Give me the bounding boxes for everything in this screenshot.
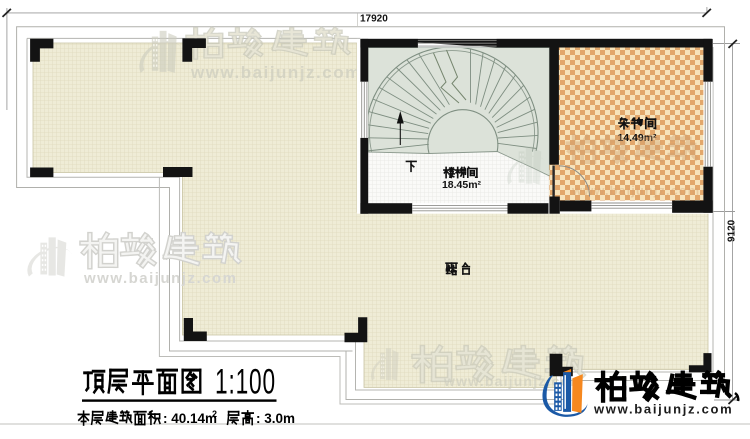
svg-text:17920: 17920 <box>360 14 388 25</box>
svg-text:9120: 9120 <box>727 219 738 242</box>
svg-text:: 40.14m: : 40.14m <box>163 411 217 426</box>
svg-text:: 3.0m: : 3.0m <box>256 411 295 426</box>
svg-text:2: 2 <box>212 409 217 419</box>
svg-text:1:100: 1:100 <box>215 362 276 401</box>
svg-text:www.baijunjz.com: www.baijunjz.com <box>190 63 362 82</box>
svg-text:www.baijunjz.com: www.baijunjz.com <box>593 402 733 417</box>
svg-text:www.baijunjz.com: www.baijunjz.com <box>571 183 700 198</box>
svg-text:18.45m²: 18.45m² <box>442 179 482 191</box>
svg-text:www.baijunjz.com: www.baijunjz.com <box>83 270 237 287</box>
